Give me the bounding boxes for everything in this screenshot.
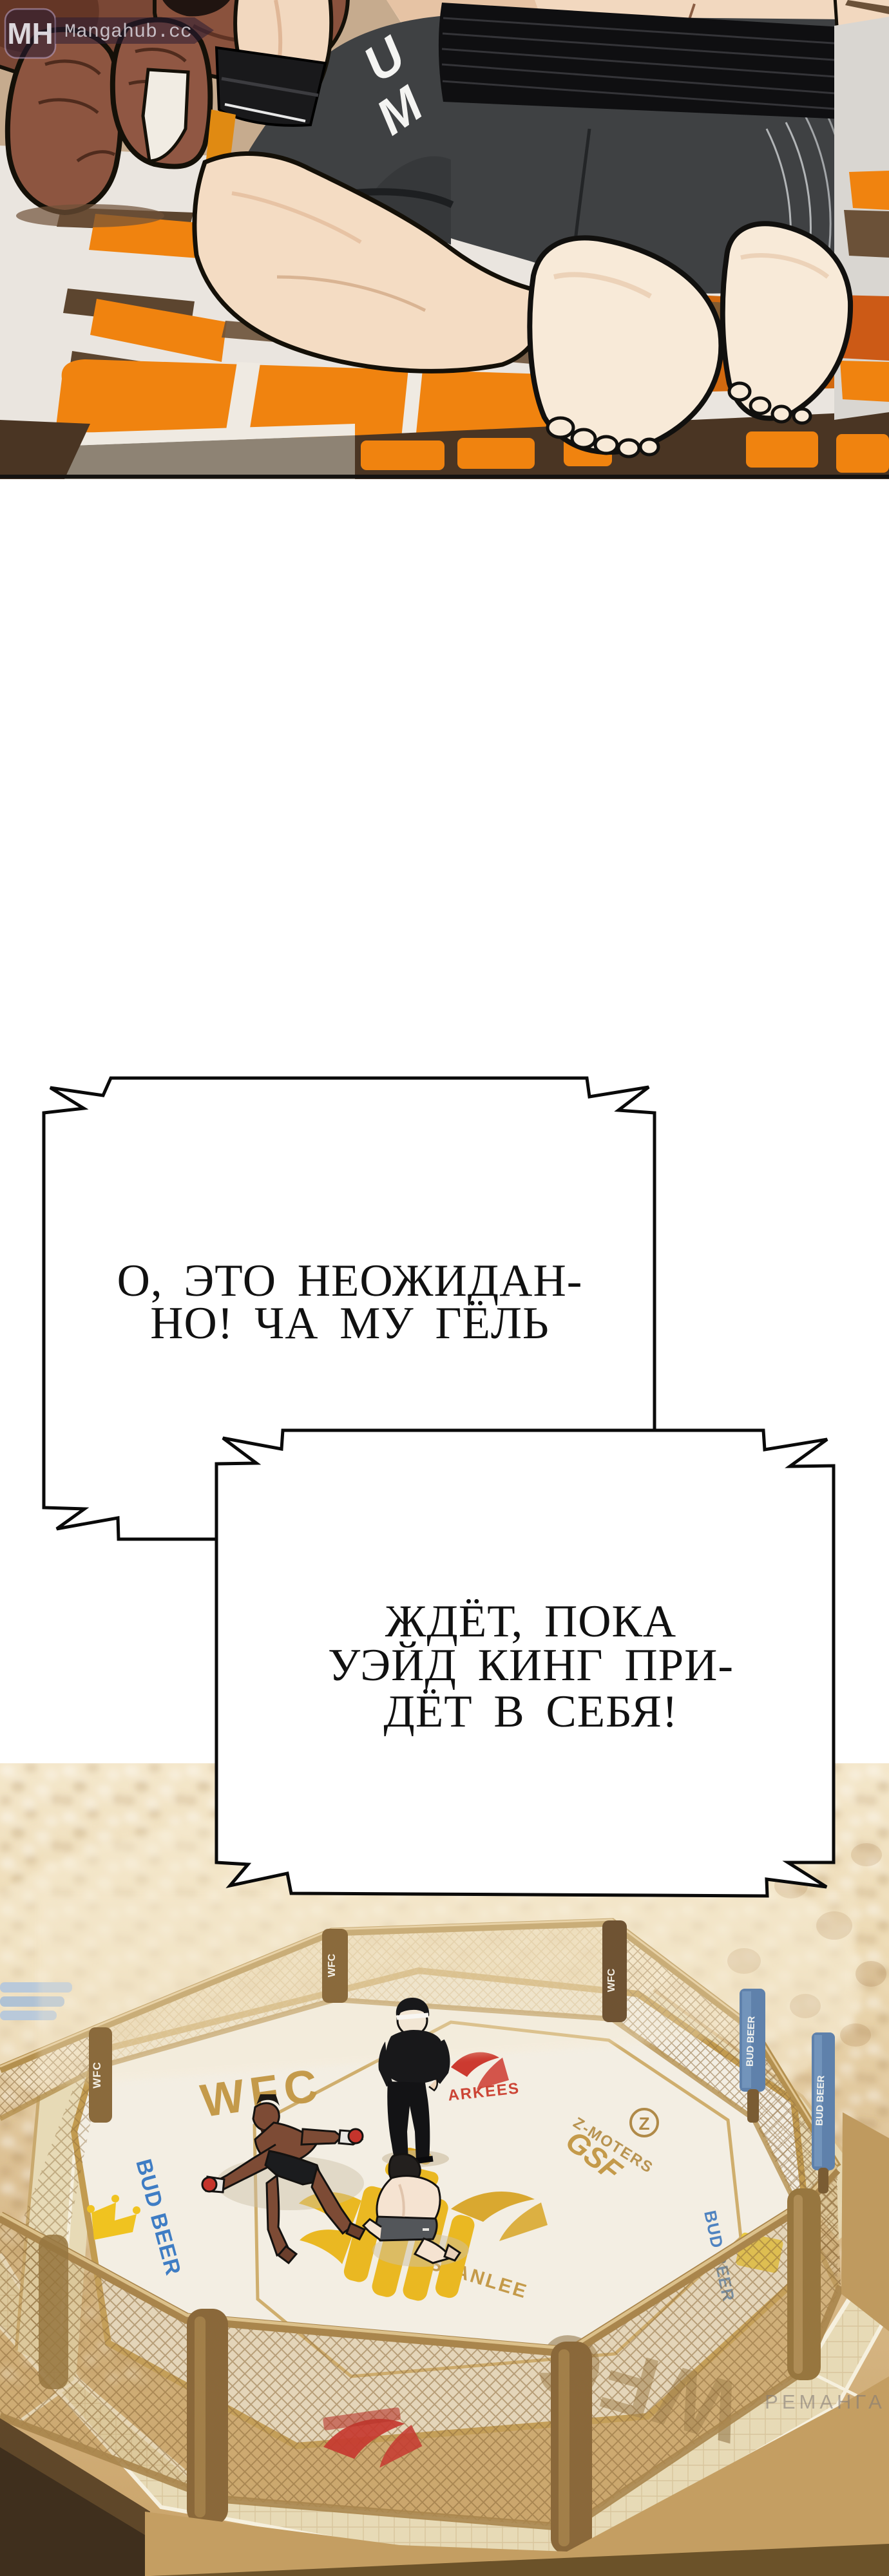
svg-text:BUD BEER: BUD BEER (814, 2075, 827, 2126)
svg-text:BUD BEER: BUD BEER (745, 2016, 758, 2067)
svg-text:WFC: WFC (91, 2061, 103, 2088)
svg-text:ДЁТ В СЕБЯ!: ДЁТ В СЕБЯ! (383, 1687, 678, 1737)
svg-text:РЕМАНГА: РЕМАНГА (765, 2391, 886, 2413)
svg-text:Z: Z (638, 2114, 649, 2134)
svg-text:WFC: WFC (327, 1953, 338, 1977)
svg-text:Mangahub.cc: Mangahub.cc (64, 21, 192, 43)
svg-text:ЖДЁТ, ПОКА: ЖДЁТ, ПОКА (385, 1596, 676, 1647)
svg-text:НО! ЧА МУ ГЁЛЬ: НО! ЧА МУ ГЁЛЬ (150, 1298, 550, 1349)
svg-text:MH: MH (7, 17, 53, 50)
svg-text:WFC: WFC (606, 1968, 617, 1992)
svg-text:УЭЙД КИНГ ПРИ-: УЭЙД КИНГ ПРИ- (328, 1640, 734, 1690)
